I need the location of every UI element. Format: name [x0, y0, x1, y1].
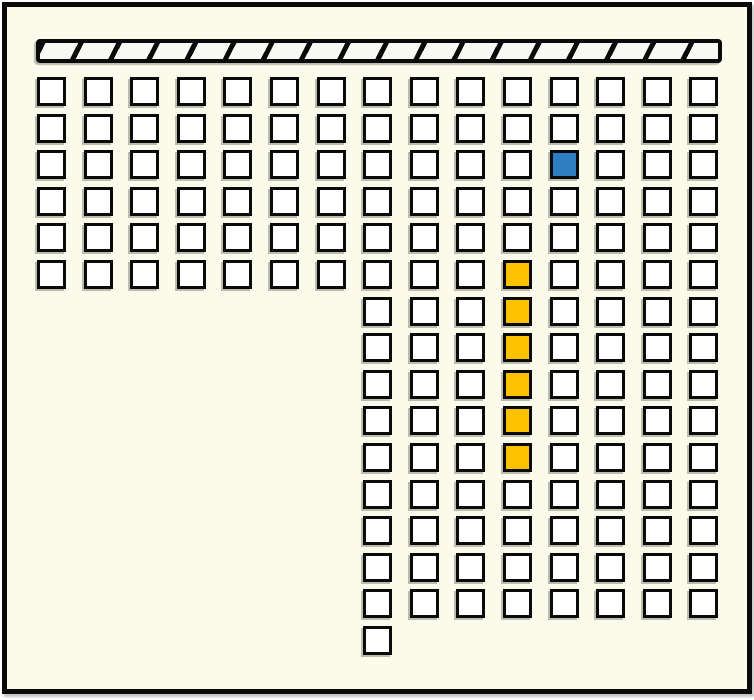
seat-cell[interactable]: [550, 223, 579, 252]
seat-cell[interactable]: [223, 223, 252, 252]
seat-cell[interactable]: [550, 553, 579, 582]
seat-cell[interactable]: [689, 260, 718, 289]
seat-cell[interactable]: [84, 150, 113, 179]
seat-cell[interactable]: [596, 297, 625, 326]
seat-cell[interactable]: [643, 333, 672, 362]
seat-cell[interactable]: [689, 589, 718, 618]
seat-cell[interactable]: [503, 480, 532, 509]
yellow-highlighted-cell[interactable]: [503, 406, 532, 435]
seat-cell[interactable]: [456, 516, 485, 545]
seat-cell[interactable]: [363, 626, 392, 655]
seat-cell[interactable]: [456, 297, 485, 326]
seat-cell[interactable]: [689, 406, 718, 435]
seat-cell[interactable]: [363, 297, 392, 326]
seat-cell[interactable]: [84, 77, 113, 106]
seat-cell[interactable]: [689, 443, 718, 472]
seat-cell[interactable]: [410, 77, 439, 106]
seat-cell[interactable]: [363, 516, 392, 545]
seat-cell[interactable]: [456, 114, 485, 143]
seat-cell[interactable]: [456, 443, 485, 472]
seat-cell[interactable]: [456, 260, 485, 289]
seat-cell[interactable]: [363, 114, 392, 143]
seat-cell[interactable]: [689, 370, 718, 399]
seat-cell[interactable]: [410, 589, 439, 618]
seat-cell[interactable]: [410, 406, 439, 435]
seat-cell[interactable]: [643, 114, 672, 143]
stage-hatched-bar: [36, 39, 722, 63]
seat-cell[interactable]: [643, 223, 672, 252]
seat-cell[interactable]: [596, 589, 625, 618]
seat-cell[interactable]: [689, 480, 718, 509]
seat-cell[interactable]: [689, 516, 718, 545]
seat-cell[interactable]: [456, 370, 485, 399]
seat-cell[interactable]: [643, 516, 672, 545]
seat-cell[interactable]: [596, 114, 625, 143]
seat-cell[interactable]: [503, 589, 532, 618]
seat-cell[interactable]: [596, 480, 625, 509]
seat-cell[interactable]: [503, 553, 532, 582]
seat-cell[interactable]: [130, 114, 159, 143]
seat-cell[interactable]: [177, 77, 206, 106]
seat-cell[interactable]: [363, 333, 392, 362]
seat-cell[interactable]: [410, 553, 439, 582]
seat-cell[interactable]: [363, 187, 392, 216]
seat-cell[interactable]: [689, 187, 718, 216]
seat-cell[interactable]: [410, 370, 439, 399]
seat-cell[interactable]: [317, 187, 346, 216]
seat-cell[interactable]: [223, 150, 252, 179]
seat-cell[interactable]: [130, 150, 159, 179]
yellow-highlighted-cell[interactable]: [503, 370, 532, 399]
seat-cell[interactable]: [270, 77, 299, 106]
seat-cell[interactable]: [363, 223, 392, 252]
yellow-highlighted-cell[interactable]: [503, 297, 532, 326]
seat-cell[interactable]: [317, 223, 346, 252]
seat-cell[interactable]: [410, 297, 439, 326]
seat-cell[interactable]: [456, 480, 485, 509]
seat-cell[interactable]: [550, 443, 579, 472]
seat-cell[interactable]: [643, 443, 672, 472]
seat-cell[interactable]: [177, 187, 206, 216]
seat-cell[interactable]: [223, 114, 252, 143]
seat-cell[interactable]: [550, 77, 579, 106]
seat-cell[interactable]: [456, 223, 485, 252]
seat-cell[interactable]: [177, 114, 206, 143]
seat-cell[interactable]: [550, 480, 579, 509]
seat-cell[interactable]: [643, 297, 672, 326]
seat-cell[interactable]: [177, 150, 206, 179]
seat-cell[interactable]: [689, 553, 718, 582]
seat-cell[interactable]: [37, 223, 66, 252]
seat-cell[interactable]: [410, 333, 439, 362]
seat-cell[interactable]: [689, 114, 718, 143]
seat-cell[interactable]: [596, 77, 625, 106]
seat-cell[interactable]: [223, 260, 252, 289]
seat-cell[interactable]: [456, 150, 485, 179]
seat-cell[interactable]: [363, 480, 392, 509]
seat-cell[interactable]: [643, 187, 672, 216]
seat-cell[interactable]: [643, 553, 672, 582]
seat-cell[interactable]: [270, 114, 299, 143]
seat-cell[interactable]: [596, 187, 625, 216]
seat-cell[interactable]: [503, 114, 532, 143]
seat-cell[interactable]: [270, 260, 299, 289]
seat-cell[interactable]: [270, 187, 299, 216]
seat-cell[interactable]: [410, 480, 439, 509]
seat-cell[interactable]: [689, 77, 718, 106]
seat-cell[interactable]: [363, 370, 392, 399]
seat-cell[interactable]: [363, 589, 392, 618]
seat-cell[interactable]: [363, 77, 392, 106]
blue-highlighted-cell[interactable]: [550, 150, 579, 179]
seat-cell[interactable]: [596, 370, 625, 399]
seat-cell[interactable]: [363, 443, 392, 472]
seat-cell[interactable]: [550, 187, 579, 216]
yellow-highlighted-cell[interactable]: [503, 333, 532, 362]
seat-cell[interactable]: [503, 187, 532, 216]
seat-cell[interactable]: [689, 150, 718, 179]
seat-cell[interactable]: [317, 150, 346, 179]
seat-cell[interactable]: [177, 260, 206, 289]
seat-cell[interactable]: [643, 77, 672, 106]
seat-cell[interactable]: [37, 260, 66, 289]
seat-cell[interactable]: [363, 260, 392, 289]
seat-cell[interactable]: [223, 187, 252, 216]
seat-cell[interactable]: [84, 187, 113, 216]
yellow-highlighted-cell[interactable]: [503, 260, 532, 289]
seat-cell[interactable]: [456, 333, 485, 362]
seat-cell[interactable]: [550, 297, 579, 326]
seat-cell[interactable]: [456, 589, 485, 618]
seat-cell[interactable]: [596, 553, 625, 582]
seat-cell[interactable]: [363, 553, 392, 582]
seat-cell[interactable]: [596, 150, 625, 179]
seat-cell[interactable]: [689, 333, 718, 362]
seat-cell[interactable]: [503, 150, 532, 179]
seat-cell[interactable]: [37, 114, 66, 143]
yellow-highlighted-cell[interactable]: [503, 443, 532, 472]
seat-cell[interactable]: [37, 150, 66, 179]
seat-cell[interactable]: [410, 150, 439, 179]
seat-cell[interactable]: [270, 223, 299, 252]
seat-cell[interactable]: [363, 406, 392, 435]
seat-cell[interactable]: [37, 77, 66, 106]
seat-cell[interactable]: [596, 516, 625, 545]
seat-cell[interactable]: [550, 370, 579, 399]
seat-cell[interactable]: [550, 260, 579, 289]
seat-cell[interactable]: [363, 150, 392, 179]
seat-cell[interactable]: [550, 406, 579, 435]
seat-cell[interactable]: [689, 297, 718, 326]
seat-cell[interactable]: [410, 114, 439, 143]
seat-cell[interactable]: [503, 223, 532, 252]
seat-cell[interactable]: [689, 223, 718, 252]
seat-cell[interactable]: [130, 223, 159, 252]
seat-cell[interactable]: [177, 223, 206, 252]
seat-cell[interactable]: [410, 443, 439, 472]
seat-cell[interactable]: [130, 77, 159, 106]
seat-cell[interactable]: [596, 406, 625, 435]
seat-cell[interactable]: [596, 223, 625, 252]
seat-cell[interactable]: [643, 589, 672, 618]
seat-cell[interactable]: [130, 187, 159, 216]
seat-cell[interactable]: [410, 260, 439, 289]
seat-cell[interactable]: [596, 443, 625, 472]
seat-cell[interactable]: [223, 77, 252, 106]
room-canvas: [2, 2, 752, 694]
seat-cell[interactable]: [317, 77, 346, 106]
seat-cell[interactable]: [550, 589, 579, 618]
seat-cell[interactable]: [550, 516, 579, 545]
seat-cell[interactable]: [84, 223, 113, 252]
seat-cell[interactable]: [550, 333, 579, 362]
seat-cell[interactable]: [596, 260, 625, 289]
seat-cell[interactable]: [317, 114, 346, 143]
seat-cell[interactable]: [643, 406, 672, 435]
seat-cell[interactable]: [456, 406, 485, 435]
seat-cell[interactable]: [596, 333, 625, 362]
seat-cell[interactable]: [643, 480, 672, 509]
seat-cell[interactable]: [410, 516, 439, 545]
seat-cell[interactable]: [317, 260, 346, 289]
seat-cell[interactable]: [643, 150, 672, 179]
seat-cell[interactable]: [84, 114, 113, 143]
seat-cell[interactable]: [643, 370, 672, 399]
seat-cell[interactable]: [503, 77, 532, 106]
seat-cell[interactable]: [410, 223, 439, 252]
seat-cell[interactable]: [37, 187, 66, 216]
seat-cell[interactable]: [550, 114, 579, 143]
seat-cell[interactable]: [130, 260, 159, 289]
seat-cell[interactable]: [643, 260, 672, 289]
seat-cell[interactable]: [456, 187, 485, 216]
seat-cell[interactable]: [410, 187, 439, 216]
seat-cell[interactable]: [270, 150, 299, 179]
seat-cell[interactable]: [84, 260, 113, 289]
seat-cell[interactable]: [503, 516, 532, 545]
seat-cell[interactable]: [456, 77, 485, 106]
seat-cell[interactable]: [456, 553, 485, 582]
